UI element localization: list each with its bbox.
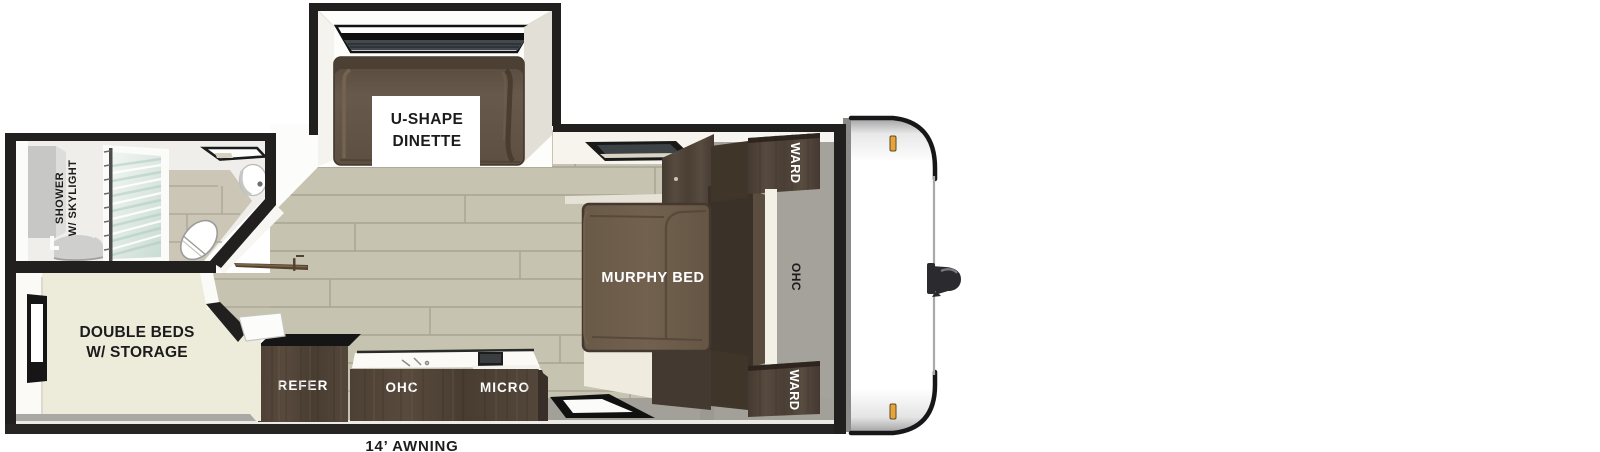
svg-text:DINETTE: DINETTE [392,133,461,150]
svg-text:U-SHAPE: U-SHAPE [391,111,464,128]
svg-text:WARD: WARD [788,143,803,184]
svg-text:MICRO: MICRO [480,380,530,395]
svg-text:WARD: WARD [787,370,802,411]
svg-text:SHOWER: SHOWER [54,172,66,224]
svg-text:DOUBLE BEDS: DOUBLE BEDS [79,324,194,341]
svg-text:OHC: OHC [789,263,803,291]
svg-text:OHC: OHC [386,380,419,395]
svg-text:MURPHY BED: MURPHY BED [601,270,704,286]
svg-text:14’ AWNING: 14’ AWNING [365,438,458,452]
svg-text:W/ SKYLIGHT: W/ SKYLIGHT [67,160,79,237]
svg-text:REFER: REFER [278,378,329,393]
svg-text:W/ STORAGE: W/ STORAGE [86,344,188,361]
